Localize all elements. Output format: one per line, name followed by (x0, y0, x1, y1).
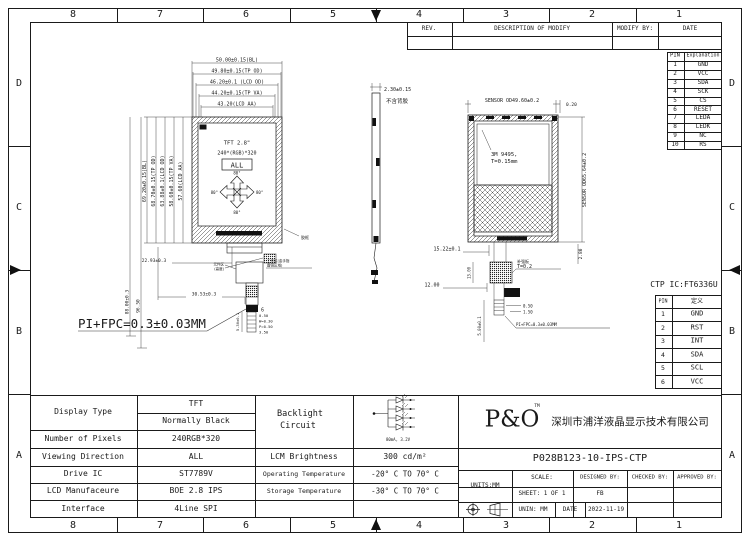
line (722, 394, 742, 395)
grid-col-label: 6 (243, 521, 249, 531)
spec-value: BOE 2.8 IPS (170, 487, 223, 495)
grid-row-label: C (16, 203, 22, 213)
ctp-pin-num: 2 (661, 325, 665, 332)
line (376, 8, 377, 22)
rev-header: MODIFY BY: (617, 26, 653, 32)
grid-col-label: 5 (330, 521, 336, 531)
line (8, 146, 30, 147)
grid-col-label: 8 (70, 521, 76, 531)
line (655, 308, 722, 309)
spec-value: -30° C TO 70° C (371, 487, 439, 495)
line (203, 8, 204, 22)
grid-col-label: 6 (243, 10, 249, 20)
spec-value: 300 cd/m² (383, 453, 426, 461)
line (549, 518, 550, 533)
line (655, 375, 722, 376)
spec-label: Display Type (54, 408, 112, 416)
ctp-pin-name: INT (691, 338, 704, 345)
line (722, 270, 742, 271)
spec-value: 4Line SPI (174, 505, 217, 513)
ctp-pin-num: 5 (661, 365, 665, 372)
ctp-pin-num: 4 (661, 352, 665, 359)
line (627, 470, 628, 518)
grid-row-label: C (729, 203, 735, 213)
ctp-pin-name: GND (691, 311, 704, 318)
line (30, 430, 255, 431)
pin-num: 9 (673, 133, 677, 139)
ctp-pin-num: 3 (661, 338, 665, 345)
line (137, 413, 255, 414)
line (655, 362, 722, 363)
grid-col-label: 4 (416, 10, 422, 20)
line (458, 470, 722, 471)
spec-label: Circuit (280, 422, 316, 431)
line (684, 52, 685, 150)
approved-by-label: APPROVED BY: (677, 475, 717, 481)
pin-name: NC (699, 133, 706, 139)
line (655, 335, 722, 336)
ctp-pin-name: SDA (691, 352, 704, 359)
line (290, 518, 291, 533)
ctp-pin-num: 6 (661, 379, 665, 386)
spec-value: -20° C TO 70° C (371, 470, 439, 478)
grid-row-label: A (729, 451, 735, 461)
sheet-label: SHEET: 1 OF 1 (519, 491, 566, 497)
designed-by-label: DESIGNED BY: (580, 475, 620, 481)
date-value: 2022-11-19 (588, 507, 624, 513)
pin-name: CS (699, 98, 706, 104)
pin-table-header: Explanation (686, 54, 719, 59)
ctp-pin-num: 1 (661, 311, 665, 318)
pin-num: 3 (673, 80, 677, 86)
grid-col-label: 7 (157, 521, 163, 531)
line (8, 394, 30, 395)
designer-initials: FB (596, 491, 603, 497)
ctp-title: CTP IC:FT6336U (650, 281, 717, 289)
line (376, 518, 377, 533)
spec-value: ALL (189, 453, 203, 461)
company-logo: P&O (485, 409, 540, 432)
pin-num: 2 (673, 71, 677, 77)
pin-num: 10 (671, 142, 678, 148)
line (655, 348, 722, 349)
grid-row-label: B (729, 327, 735, 337)
line (30, 483, 458, 484)
spec-label: Drive IC (64, 470, 103, 478)
line (30, 500, 458, 501)
pin-num: 1 (673, 62, 677, 68)
pin-name: LEDA (696, 115, 710, 121)
grid-col-label: 5 (330, 10, 336, 20)
line (512, 470, 513, 518)
line (658, 22, 659, 50)
scale-label: SCALE: (531, 475, 553, 481)
spec-value: TFT (189, 400, 203, 408)
part-number: P028B123-10-IPS-CTP (533, 454, 647, 464)
grid-col-label: 7 (157, 10, 163, 20)
line (30, 448, 722, 449)
grid-row-label: A (16, 451, 22, 461)
line (636, 518, 637, 533)
grid-row-label: D (729, 79, 735, 89)
grid-col-label: 4 (416, 521, 422, 531)
rev-header: REV. (422, 26, 436, 32)
spec-value: ST7789V (179, 470, 213, 478)
pin-name: RS (699, 142, 706, 148)
pin-table-header: PIN (670, 53, 680, 59)
drawing-sheet: 8 7 6 5 4 3 2 1 8 7 6 5 4 3 2 1 D C B A … (0, 0, 750, 541)
grid-col-label: 1 (676, 521, 682, 531)
line (8, 270, 30, 271)
ctp-header: PIN (658, 300, 667, 305)
ctp-pin-name: SCL (691, 365, 704, 372)
line (549, 8, 550, 22)
company-name: 深圳市浦洋液晶显示技术有限公司 (551, 417, 709, 428)
spec-label: Operating Temperature (263, 471, 345, 478)
grid-col-label: 1 (676, 10, 682, 20)
line (555, 502, 556, 518)
pin-num: 7 (673, 115, 677, 121)
rev-header: DESCRIPTION OF MODIFY (494, 26, 570, 32)
ctp-pin-name: RST (691, 325, 704, 332)
date-label: DATE (563, 507, 577, 513)
pin-name: VCC (698, 71, 709, 77)
line (452, 22, 453, 50)
grid-col-label: 8 (70, 10, 76, 20)
line (612, 22, 613, 50)
units-label: UNITS:MM (471, 483, 500, 489)
grid-col-label: 3 (503, 10, 509, 20)
line (117, 8, 118, 22)
rev-header: DATE (683, 26, 697, 32)
line (117, 518, 118, 533)
pin-name: SDA (698, 80, 709, 86)
line (722, 146, 742, 147)
line (463, 518, 464, 533)
line (458, 395, 459, 518)
line (203, 518, 204, 533)
inner-border (30, 22, 722, 518)
pin-name: SCK (698, 89, 709, 95)
trademark: TM (534, 405, 539, 410)
grid-col-label: 3 (503, 521, 509, 531)
pin-name: LEDK (696, 124, 710, 130)
unin-label: UNIN: MM (519, 507, 548, 513)
grid-col-label: 2 (589, 10, 595, 20)
spec-label: Storage Temperature (267, 488, 341, 495)
grid-col-label: 2 (589, 521, 595, 531)
line (30, 395, 722, 396)
line (407, 36, 722, 37)
spec-value: 240RGB*320 (172, 435, 220, 443)
pin-num: 8 (673, 124, 677, 130)
spec-label: LCD Manufaceure (47, 487, 119, 495)
line (673, 470, 674, 518)
ctp-pin-name: VCC (691, 379, 704, 386)
line (290, 8, 291, 22)
pin-name: GND (698, 62, 709, 68)
checked-by-label: CHECKED BY: (632, 475, 668, 481)
line (458, 502, 722, 503)
line (30, 466, 458, 467)
pin-num: 4 (673, 89, 677, 95)
ctp-header: 定义 (691, 299, 703, 305)
line (636, 8, 637, 22)
grid-row-label: D (16, 79, 22, 89)
line (585, 502, 586, 518)
spec-label: Backlight (277, 410, 323, 419)
pin-num: 6 (673, 107, 677, 113)
spec-label: LCM Brightness (270, 453, 337, 461)
spec-value: Normally Black (162, 417, 229, 425)
spec-label: Number of Pixels (44, 435, 121, 443)
line (655, 321, 722, 322)
spec-label: Viewing Direction (42, 453, 124, 461)
grid-row-label: B (16, 327, 22, 337)
pin-num: 5 (673, 98, 677, 104)
line (463, 8, 464, 22)
pin-name: RESET (694, 107, 712, 113)
spec-label: Interface (61, 505, 104, 513)
